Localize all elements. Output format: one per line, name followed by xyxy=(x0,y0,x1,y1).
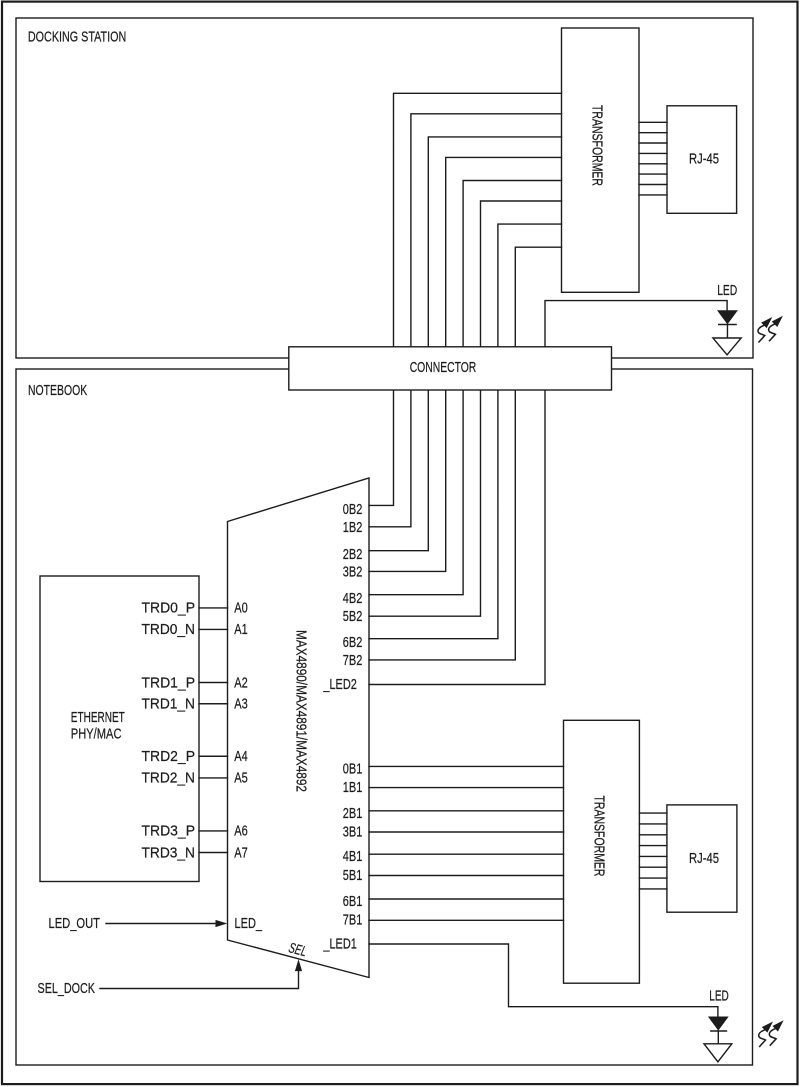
svg-text:RJ-45: RJ-45 xyxy=(689,851,719,867)
svg-text:A6: A6 xyxy=(234,824,248,840)
svg-text:1B2: 1B2 xyxy=(343,520,363,536)
svg-text:LED: LED xyxy=(709,988,729,1004)
svg-text:RJ-45: RJ-45 xyxy=(689,151,719,167)
svg-text:2B1: 2B1 xyxy=(343,806,363,822)
svg-text:CONNECTOR: CONNECTOR xyxy=(410,360,477,376)
svg-text:TRD1_N: TRD1_N xyxy=(142,697,196,713)
svg-text:A4: A4 xyxy=(234,749,248,765)
svg-text:LED_OUT: LED_OUT xyxy=(49,916,101,932)
svg-text:_LED1: _LED1 xyxy=(323,937,357,953)
svg-text:TRD3_N: TRD3_N xyxy=(142,845,196,861)
svg-text:SEL_DOCK: SEL_DOCK xyxy=(38,981,96,997)
svg-text:1B1: 1B1 xyxy=(343,780,363,796)
svg-text:TRANSFORMER: TRANSFORMER xyxy=(591,796,607,877)
svg-text:7B1: 7B1 xyxy=(343,913,363,929)
svg-text:TRD1_P: TRD1_P xyxy=(142,675,196,691)
svg-text:4B2: 4B2 xyxy=(343,591,363,607)
svg-text:LED_: LED_ xyxy=(235,916,263,932)
svg-text:6B2: 6B2 xyxy=(343,635,363,651)
svg-text:TRD2_N: TRD2_N xyxy=(142,771,196,787)
svg-text:NOTEBOOK: NOTEBOOK xyxy=(28,383,88,399)
svg-text:PHY/MAC: PHY/MAC xyxy=(71,726,122,742)
svg-text:TRD2_P: TRD2_P xyxy=(142,749,196,765)
svg-text:TRD3_P: TRD3_P xyxy=(142,824,196,840)
svg-text:0B2: 0B2 xyxy=(343,502,363,518)
svg-text:A7: A7 xyxy=(234,845,248,861)
svg-text:A0: A0 xyxy=(234,601,248,617)
svg-text:5B1: 5B1 xyxy=(343,868,363,884)
svg-text:TRANSFORMER: TRANSFORMER xyxy=(588,105,604,186)
svg-text:0B1: 0B1 xyxy=(343,761,363,777)
svg-text:2B2: 2B2 xyxy=(343,547,363,563)
svg-text:ETHERNET: ETHERNET xyxy=(71,710,125,726)
svg-text:TRD0_N: TRD0_N xyxy=(142,622,196,638)
svg-text:A5: A5 xyxy=(234,771,248,787)
svg-text:A3: A3 xyxy=(234,697,248,713)
svg-text:SEL: SEL xyxy=(287,940,308,960)
svg-text:A2: A2 xyxy=(234,675,248,691)
svg-text:3B1: 3B1 xyxy=(343,824,363,840)
svg-text:6B1: 6B1 xyxy=(343,894,363,910)
svg-text:TRD0_P: TRD0_P xyxy=(142,601,196,617)
svg-text:4B1: 4B1 xyxy=(343,849,363,865)
svg-text:DOCKING STATION: DOCKING STATION xyxy=(28,29,126,45)
svg-text:A1: A1 xyxy=(234,622,248,638)
svg-text:_LED2: _LED2 xyxy=(323,677,357,693)
svg-text:LED: LED xyxy=(717,283,737,299)
svg-text:7B2: 7B2 xyxy=(343,653,363,669)
svg-text:3B2: 3B2 xyxy=(343,564,363,580)
svg-text:MAX4890/MAX4891/MAX4892: MAX4890/MAX4891/MAX4892 xyxy=(293,630,309,792)
svg-text:5B2: 5B2 xyxy=(343,609,363,625)
